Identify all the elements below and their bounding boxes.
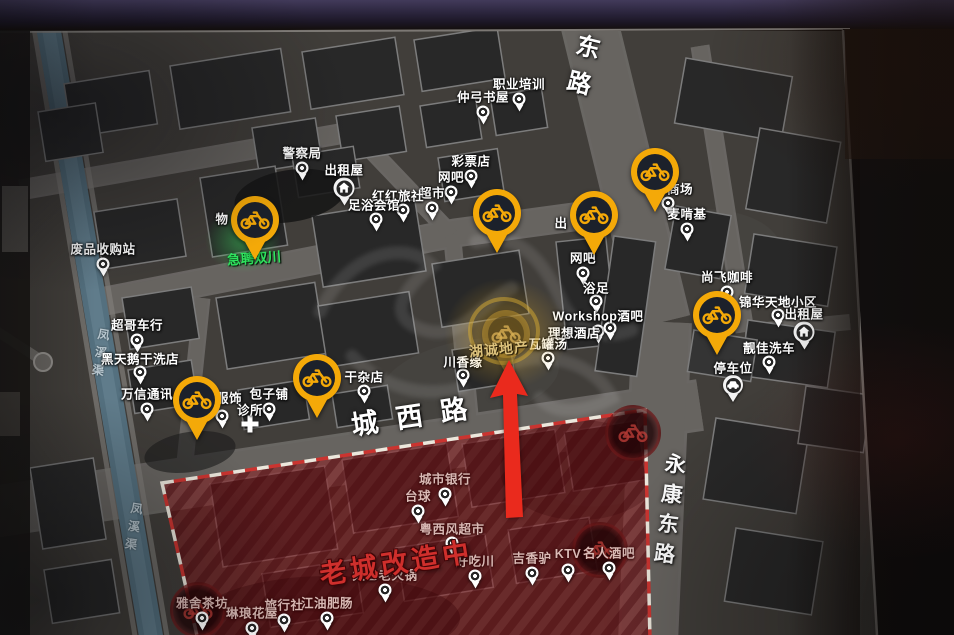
bike-station-pin[interactable] [473, 189, 521, 255]
partial-poi-label: 出 [554, 213, 567, 232]
poi-pin-dot[interactable] [603, 562, 616, 575]
poi-label: 浴足 [583, 278, 609, 297]
poi-pin-dot[interactable] [379, 584, 392, 597]
poi-pin-dot[interactable] [358, 385, 371, 398]
poi-label: 仲弓书屋 [457, 87, 509, 106]
bike-station-pin[interactable] [693, 291, 741, 357]
bike-station-pin[interactable] [570, 191, 618, 257]
bike-station-pin[interactable] [231, 196, 279, 262]
poi-pin-dot[interactable] [445, 186, 458, 199]
poi-pin-dot[interactable] [131, 334, 144, 347]
cul-de-sac [34, 353, 52, 371]
poi-pin-dot[interactable] [562, 564, 575, 577]
poi-label: 名人酒吧 [583, 543, 635, 562]
partial-poi-label: 物 [215, 209, 228, 228]
poi-pin-dot[interactable] [465, 170, 478, 183]
bike-station-pin[interactable] [631, 148, 679, 214]
poi-label: KTV [555, 547, 582, 561]
poi-pin-dot[interactable] [246, 622, 259, 635]
poi-label: 江油肥肠 [301, 593, 353, 612]
poi-pin-dot[interactable] [426, 202, 439, 215]
poi-label: 万信通讯 [121, 384, 173, 403]
poi-label: 停车位 [713, 358, 752, 377]
poi-label: 足浴会馆 [348, 195, 400, 214]
poi-label: 废品收购站 [70, 239, 135, 258]
poi-pin-dot[interactable] [763, 356, 776, 369]
poi-label: 包子铺 [249, 384, 288, 403]
poi-pin-dot[interactable] [296, 162, 309, 175]
poi-pin-dot[interactable] [196, 612, 209, 625]
poi-label: 超哥车行 [111, 315, 163, 334]
poi-pin-dot[interactable] [526, 567, 539, 580]
poi-label: 尚飞咖啡 [701, 267, 753, 286]
poi-label: 琳琅花屋 [226, 603, 278, 622]
poi-label: 干杂店 [344, 367, 383, 386]
poi-pin-dot[interactable] [412, 505, 425, 518]
bike-station-pin[interactable] [293, 354, 341, 420]
poi-pin-dot[interactable] [263, 403, 276, 416]
poi-label: 雅舍茶坊 [176, 593, 228, 612]
disabled-bike-station-icon [605, 405, 661, 461]
poi-pin-dot[interactable] [439, 488, 452, 501]
poi-label: 黑天鹅干洗店 [101, 349, 179, 368]
poi-label: 台球 [405, 486, 431, 505]
poi-pin-dot[interactable] [278, 614, 291, 627]
poi-label: 吉香驴 [512, 548, 551, 567]
poi-pin-dot[interactable] [141, 403, 154, 416]
poi-pin-dot[interactable] [513, 93, 526, 106]
poi-label: 出租屋 [324, 160, 363, 179]
poi-label: 靓佳洗车 [743, 338, 795, 357]
bike-station-pin[interactable] [173, 376, 221, 442]
poi-pin-dot[interactable] [97, 258, 110, 271]
poi-pin-dot[interactable] [477, 106, 490, 119]
poi-label: 出租屋 [784, 304, 823, 323]
poi-pin-dot[interactable] [370, 213, 383, 226]
poi-pin-dot[interactable] [321, 612, 334, 625]
poi-pin-house[interactable] [794, 322, 815, 343]
poi-label: 警察局 [282, 143, 321, 162]
poi-pin-dot[interactable] [469, 570, 482, 583]
poi-pin-car[interactable] [723, 375, 743, 395]
game-map-screen: 东路 城西路 永康东路 凤溪渠 凤溪渠 职业培训仲弓书屋警察局出租屋彩票店网吧超… [0, 0, 954, 635]
poi-pin-dot[interactable] [681, 223, 694, 236]
alert-arrow [478, 352, 538, 522]
